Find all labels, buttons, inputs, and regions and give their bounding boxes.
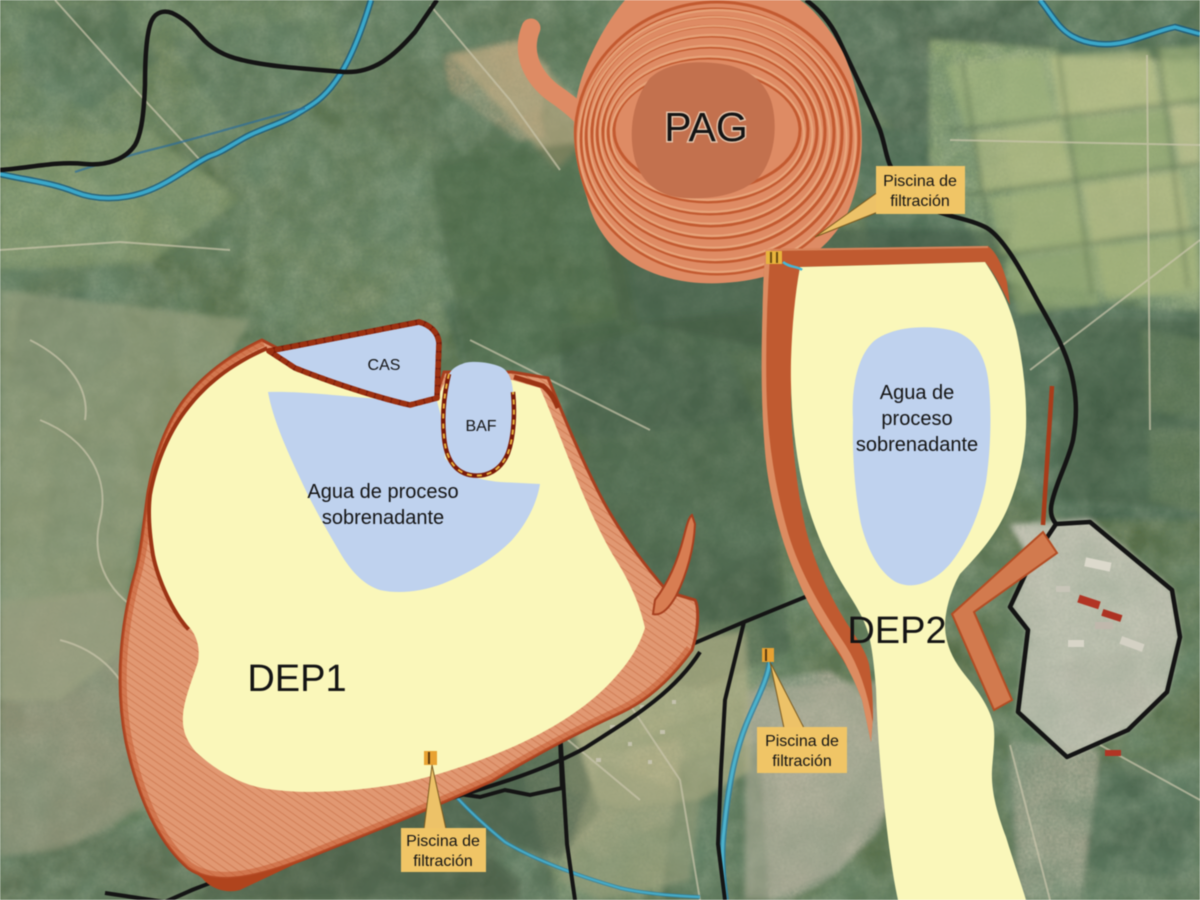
svg-text:filtración: filtración: [413, 853, 473, 870]
svg-text:sobrenadante: sobrenadante: [322, 507, 444, 529]
svg-text:Agua de: Agua de: [880, 382, 955, 404]
svg-text:sobrenadante: sobrenadante: [856, 434, 978, 456]
svg-text:proceso: proceso: [881, 408, 952, 430]
svg-text:DEP2: DEP2: [847, 610, 946, 652]
svg-text:Agua de proceso: Agua de proceso: [307, 481, 458, 503]
svg-text:CAS: CAS: [368, 357, 401, 374]
svg-text:BAF: BAF: [465, 418, 496, 435]
svg-text:DEP1: DEP1: [247, 658, 346, 700]
svg-text:PAG: PAG: [664, 104, 748, 150]
svg-text:filtración: filtración: [772, 753, 832, 770]
svg-text:Piscina de: Piscina de: [883, 173, 957, 190]
svg-text:filtración: filtración: [890, 193, 950, 210]
svg-text:Piscina de: Piscina de: [406, 833, 480, 850]
svg-text:Piscina de: Piscina de: [765, 733, 839, 750]
